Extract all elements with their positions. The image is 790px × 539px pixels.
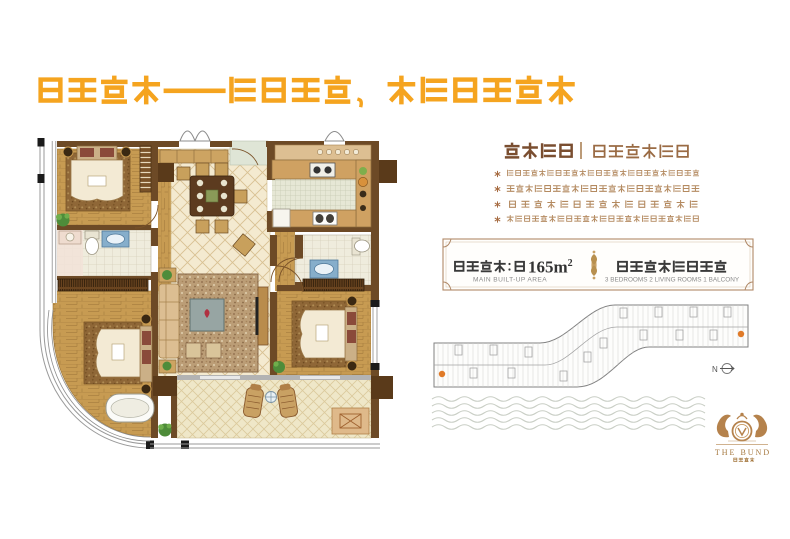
svg-text:THE BUND: THE BUND: [715, 448, 771, 457]
svg-text:MAIN BUILT-UP AREA: MAIN BUILT-UP AREA: [473, 277, 547, 284]
svg-text:N: N: [712, 365, 718, 374]
svg-text:3 BEDROOMS 2 LIVING ROOMS 1: 3 BEDROOMS 2 LIVING ROOMS 1 BALCONY: [605, 277, 740, 284]
svg-text:165m2: 165m2: [528, 258, 573, 277]
